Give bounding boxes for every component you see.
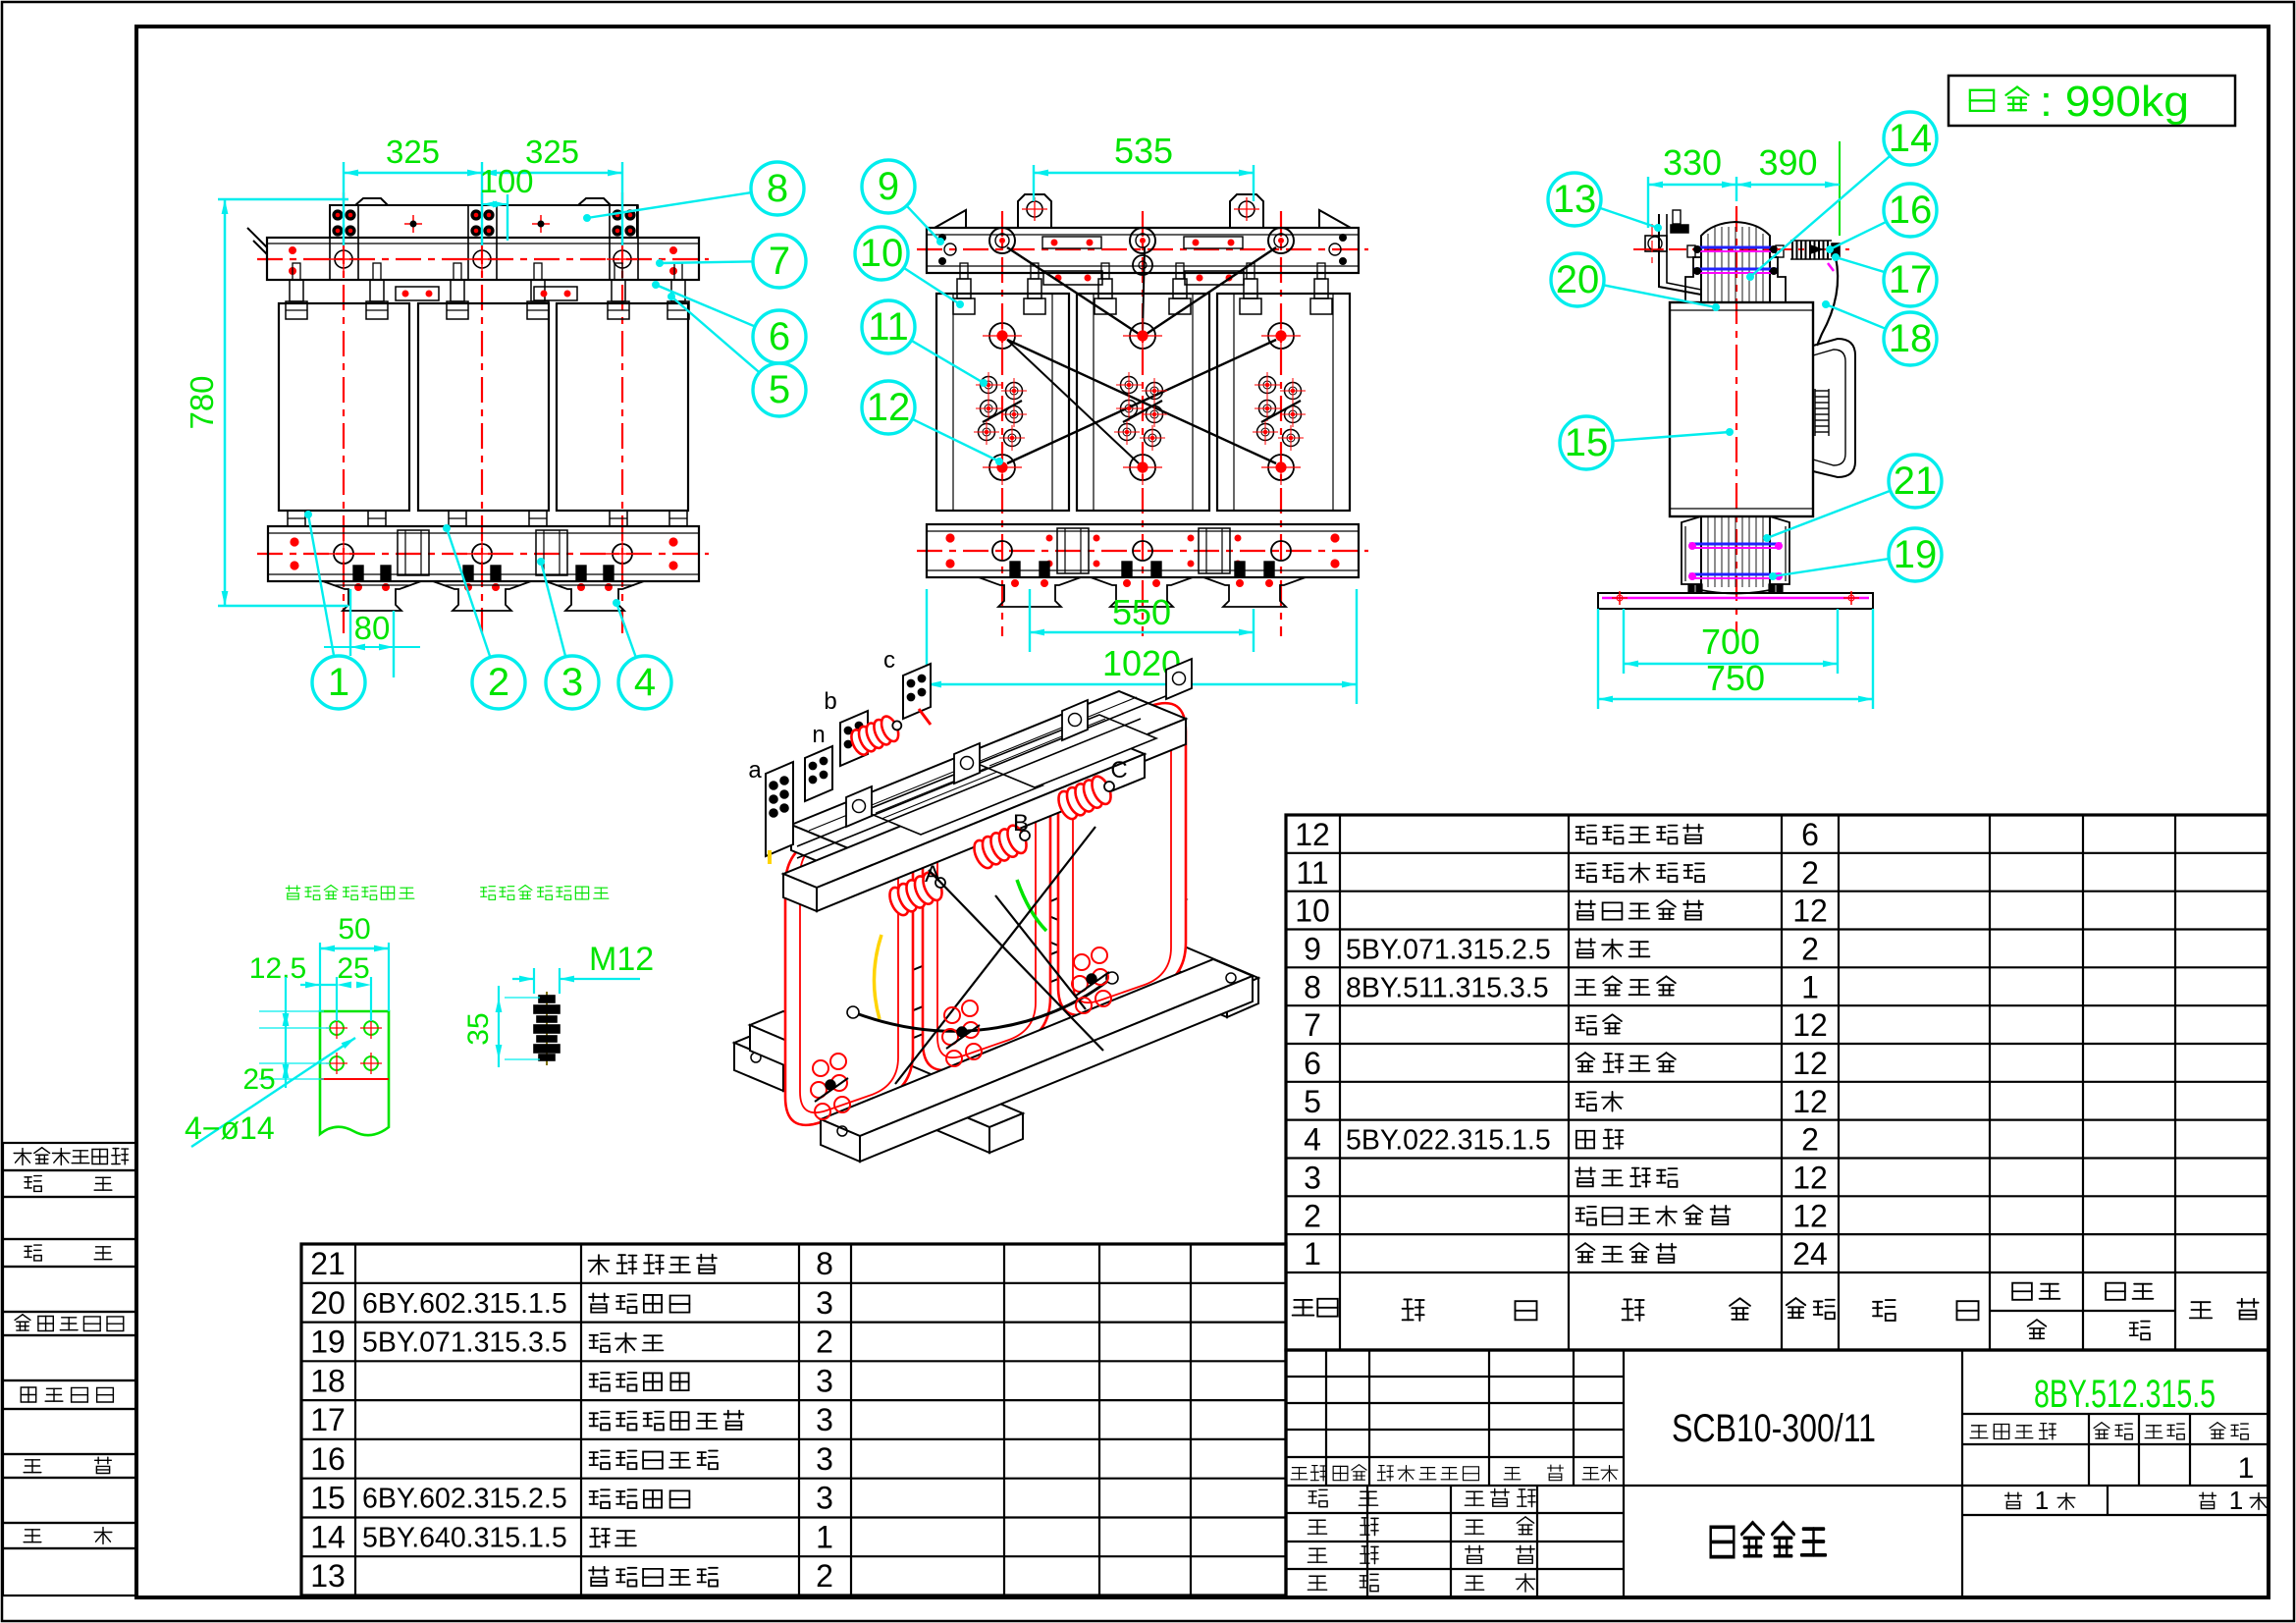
svg-text:20: 20 bbox=[310, 1285, 346, 1321]
svg-text:n: n bbox=[812, 722, 825, 748]
svg-text:5BY.640.315.1.5: 5BY.640.315.1.5 bbox=[362, 1523, 567, 1554]
svg-text:SCB10-300/11: SCB10-300/11 bbox=[1672, 1407, 1876, 1450]
svg-text:100: 100 bbox=[479, 163, 533, 199]
svg-text:6: 6 bbox=[1801, 817, 1819, 852]
svg-text:80: 80 bbox=[354, 610, 391, 646]
svg-text:19: 19 bbox=[310, 1325, 346, 1360]
svg-text:2: 2 bbox=[488, 661, 509, 704]
svg-text:21: 21 bbox=[1894, 460, 1938, 503]
svg-text:700: 700 bbox=[1701, 622, 1760, 662]
svg-text:3: 3 bbox=[1304, 1161, 1321, 1196]
svg-text:A: A bbox=[925, 861, 940, 888]
svg-text:8: 8 bbox=[816, 1246, 833, 1281]
svg-text:2: 2 bbox=[1801, 855, 1819, 891]
svg-text:13: 13 bbox=[1553, 178, 1597, 221]
svg-text:25: 25 bbox=[337, 952, 369, 985]
svg-text:5BY.071.315.3.5: 5BY.071.315.3.5 bbox=[362, 1327, 567, 1359]
svg-text:12: 12 bbox=[1792, 1046, 1828, 1081]
svg-text:6: 6 bbox=[769, 315, 790, 358]
svg-text:b: b bbox=[824, 688, 836, 715]
svg-text:6BY.602.315.2.5: 6BY.602.315.2.5 bbox=[362, 1484, 567, 1515]
svg-text:750: 750 bbox=[1706, 658, 1765, 698]
svg-text:5: 5 bbox=[769, 368, 790, 411]
svg-text:550: 550 bbox=[1112, 592, 1171, 632]
svg-text:20: 20 bbox=[1556, 258, 1600, 301]
svg-text:6BY.602.315.1.5: 6BY.602.315.1.5 bbox=[362, 1288, 567, 1320]
svg-text:4: 4 bbox=[634, 661, 656, 704]
svg-text:3: 3 bbox=[816, 1363, 833, 1398]
svg-text:19: 19 bbox=[1894, 533, 1938, 576]
svg-text:12: 12 bbox=[1792, 893, 1828, 929]
svg-text:4: 4 bbox=[1304, 1122, 1321, 1158]
svg-text:8BY.512.315.5: 8BY.512.315.5 bbox=[2034, 1373, 2216, 1416]
svg-text:9: 9 bbox=[878, 165, 899, 208]
svg-text:3: 3 bbox=[561, 661, 583, 704]
svg-text:5: 5 bbox=[1304, 1084, 1321, 1119]
svg-text:3: 3 bbox=[816, 1441, 833, 1477]
svg-text:12: 12 bbox=[1295, 817, 1330, 852]
svg-text:390: 390 bbox=[1758, 142, 1817, 183]
svg-text:17: 17 bbox=[1889, 258, 1933, 301]
svg-text:780: 780 bbox=[184, 375, 220, 429]
svg-text:24: 24 bbox=[1792, 1236, 1828, 1271]
svg-text:12: 12 bbox=[1792, 1198, 1828, 1233]
svg-text:535: 535 bbox=[1114, 131, 1173, 171]
svg-text:14: 14 bbox=[310, 1520, 346, 1555]
svg-text:1: 1 bbox=[2238, 1452, 2255, 1485]
svg-text:5BY.022.315.1.5: 5BY.022.315.1.5 bbox=[1346, 1125, 1551, 1157]
svg-text:35: 35 bbox=[462, 1012, 495, 1045]
svg-text:: 990kg: : 990kg bbox=[2040, 78, 2189, 126]
svg-text:8BY.511.315.3.5: 8BY.511.315.3.5 bbox=[1346, 972, 1549, 1003]
svg-text:12: 12 bbox=[867, 386, 911, 429]
svg-text:1: 1 bbox=[2229, 1486, 2243, 1515]
svg-text:11: 11 bbox=[1296, 855, 1328, 891]
svg-text:11: 11 bbox=[868, 305, 909, 349]
svg-text:5BY.071.315.2.5: 5BY.071.315.2.5 bbox=[1346, 935, 1551, 966]
svg-text:B: B bbox=[1013, 810, 1029, 837]
svg-text:3: 3 bbox=[816, 1481, 833, 1516]
svg-text:12: 12 bbox=[1792, 1161, 1828, 1196]
svg-text:9: 9 bbox=[1304, 932, 1321, 967]
svg-text:7: 7 bbox=[769, 240, 790, 283]
svg-text:12: 12 bbox=[1792, 1007, 1828, 1043]
svg-text:10: 10 bbox=[1295, 893, 1330, 929]
svg-text:13: 13 bbox=[310, 1558, 346, 1594]
svg-text:2: 2 bbox=[1801, 932, 1819, 967]
svg-text:2: 2 bbox=[816, 1558, 833, 1594]
svg-text:16: 16 bbox=[1889, 189, 1933, 232]
svg-text:17: 17 bbox=[310, 1402, 346, 1437]
svg-text:1: 1 bbox=[816, 1520, 833, 1555]
svg-text:18: 18 bbox=[1889, 317, 1933, 360]
svg-text:C: C bbox=[1110, 757, 1127, 784]
svg-text:21: 21 bbox=[310, 1246, 346, 1281]
svg-text:c: c bbox=[883, 647, 895, 674]
svg-text:7: 7 bbox=[1304, 1007, 1321, 1043]
svg-text:a: a bbox=[748, 757, 762, 784]
svg-text:2: 2 bbox=[1304, 1198, 1321, 1233]
svg-text:1: 1 bbox=[328, 661, 349, 704]
svg-text:18: 18 bbox=[310, 1363, 346, 1398]
svg-text:16: 16 bbox=[310, 1441, 346, 1477]
svg-text:8: 8 bbox=[1304, 969, 1321, 1004]
svg-text:15: 15 bbox=[1565, 421, 1609, 464]
svg-text:2: 2 bbox=[816, 1325, 833, 1360]
svg-text:3: 3 bbox=[816, 1285, 833, 1321]
svg-text:25: 25 bbox=[242, 1063, 275, 1096]
svg-text:1: 1 bbox=[1801, 969, 1819, 1004]
svg-text:1: 1 bbox=[1304, 1236, 1321, 1271]
svg-text:4−ø14: 4−ø14 bbox=[185, 1110, 275, 1146]
svg-text:M12: M12 bbox=[589, 941, 654, 978]
svg-text:50: 50 bbox=[338, 913, 370, 946]
svg-text:330: 330 bbox=[1663, 142, 1722, 183]
svg-text:325: 325 bbox=[386, 134, 440, 170]
svg-text:8: 8 bbox=[767, 167, 788, 210]
svg-text:12: 12 bbox=[1792, 1084, 1828, 1119]
svg-text:2: 2 bbox=[1801, 1122, 1819, 1158]
svg-text:3: 3 bbox=[816, 1402, 833, 1437]
svg-text:15: 15 bbox=[310, 1481, 346, 1516]
svg-text:10: 10 bbox=[860, 232, 904, 275]
svg-text:14: 14 bbox=[1889, 117, 1933, 160]
svg-text:1: 1 bbox=[2035, 1486, 2049, 1515]
svg-text:6: 6 bbox=[1304, 1046, 1321, 1081]
svg-text:12.5: 12.5 bbox=[249, 952, 306, 985]
